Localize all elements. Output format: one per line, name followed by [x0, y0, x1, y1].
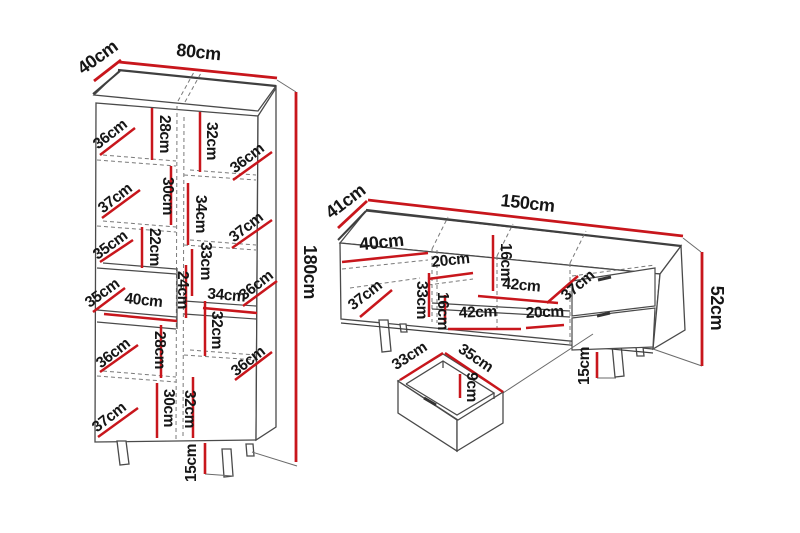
cabinet-cell-dim-label: 28cm — [151, 331, 168, 369]
cabinet-cell-dim-label: 30cm — [159, 177, 176, 215]
tv-stand-cell-dim-label: 16cm — [434, 292, 451, 330]
cabinet-cell-dim-label: 30cm — [160, 389, 177, 427]
cabinet-cell-dim-label: 34cm — [192, 195, 209, 233]
furniture-dimension-diagram: 40cm 80cm 180cm 15cm 36cm 28cm 32cm 36cm… — [0, 0, 800, 533]
cabinet-cell-dim-label: 32cm — [181, 390, 198, 428]
tv-stand-cell-dim-label: 33cm — [413, 281, 430, 319]
tv-stand-leg-height-label: 15cm — [576, 347, 593, 385]
cabinet-height-label: 180cm — [300, 245, 320, 299]
cabinet-cell-dim-label: 24cm — [174, 271, 191, 309]
drawer-detail-diagram: 33cm 35cm 9cm — [389, 339, 503, 451]
cabinet-cell-dim-label: 22cm — [146, 228, 163, 266]
tv-stand-foot — [400, 324, 407, 332]
cabinet-foot — [246, 444, 254, 456]
cabinet-leg-height-label: 15cm — [183, 444, 200, 482]
cabinet-cell-dim-label: 32cm — [208, 311, 225, 349]
cabinet-right-panel — [256, 88, 276, 440]
tv-stand-diagram: 41cm 150cm 52cm 15cm 40cm 20cm 16cm 42cm… — [322, 180, 727, 393]
cabinet-cell-dim-label: 28cm — [156, 115, 173, 153]
diagram-page: 40cm 80cm 180cm 15cm 36cm 28cm 32cm 36cm… — [0, 0, 800, 533]
tv-stand-cell-dim-label: 42cm — [459, 303, 498, 321]
cabinet-diagram: 40cm 80cm 180cm 15cm 36cm 28cm 32cm 36cm… — [74, 36, 320, 482]
tv-stand-cell-dim-label: 20cm — [525, 303, 564, 322]
tv-stand-leg — [379, 320, 391, 352]
tv-stand-cell-dim-label: 42cm — [502, 275, 541, 295]
cabinet-depth-label: 40cm — [74, 36, 122, 78]
cabinet-leg — [222, 449, 233, 477]
cabinet-cell-dim-label: 32cm — [203, 122, 220, 160]
cabinet-width-label: 80cm — [175, 40, 221, 65]
drawer-height-label: 9cm — [463, 372, 480, 402]
cabinet-leg — [117, 441, 129, 465]
cabinet-cell-dim-label: 33cm — [197, 242, 214, 280]
tv-stand-width-label: 150cm — [500, 190, 556, 216]
tv-stand-height-label: 52cm — [707, 286, 727, 330]
